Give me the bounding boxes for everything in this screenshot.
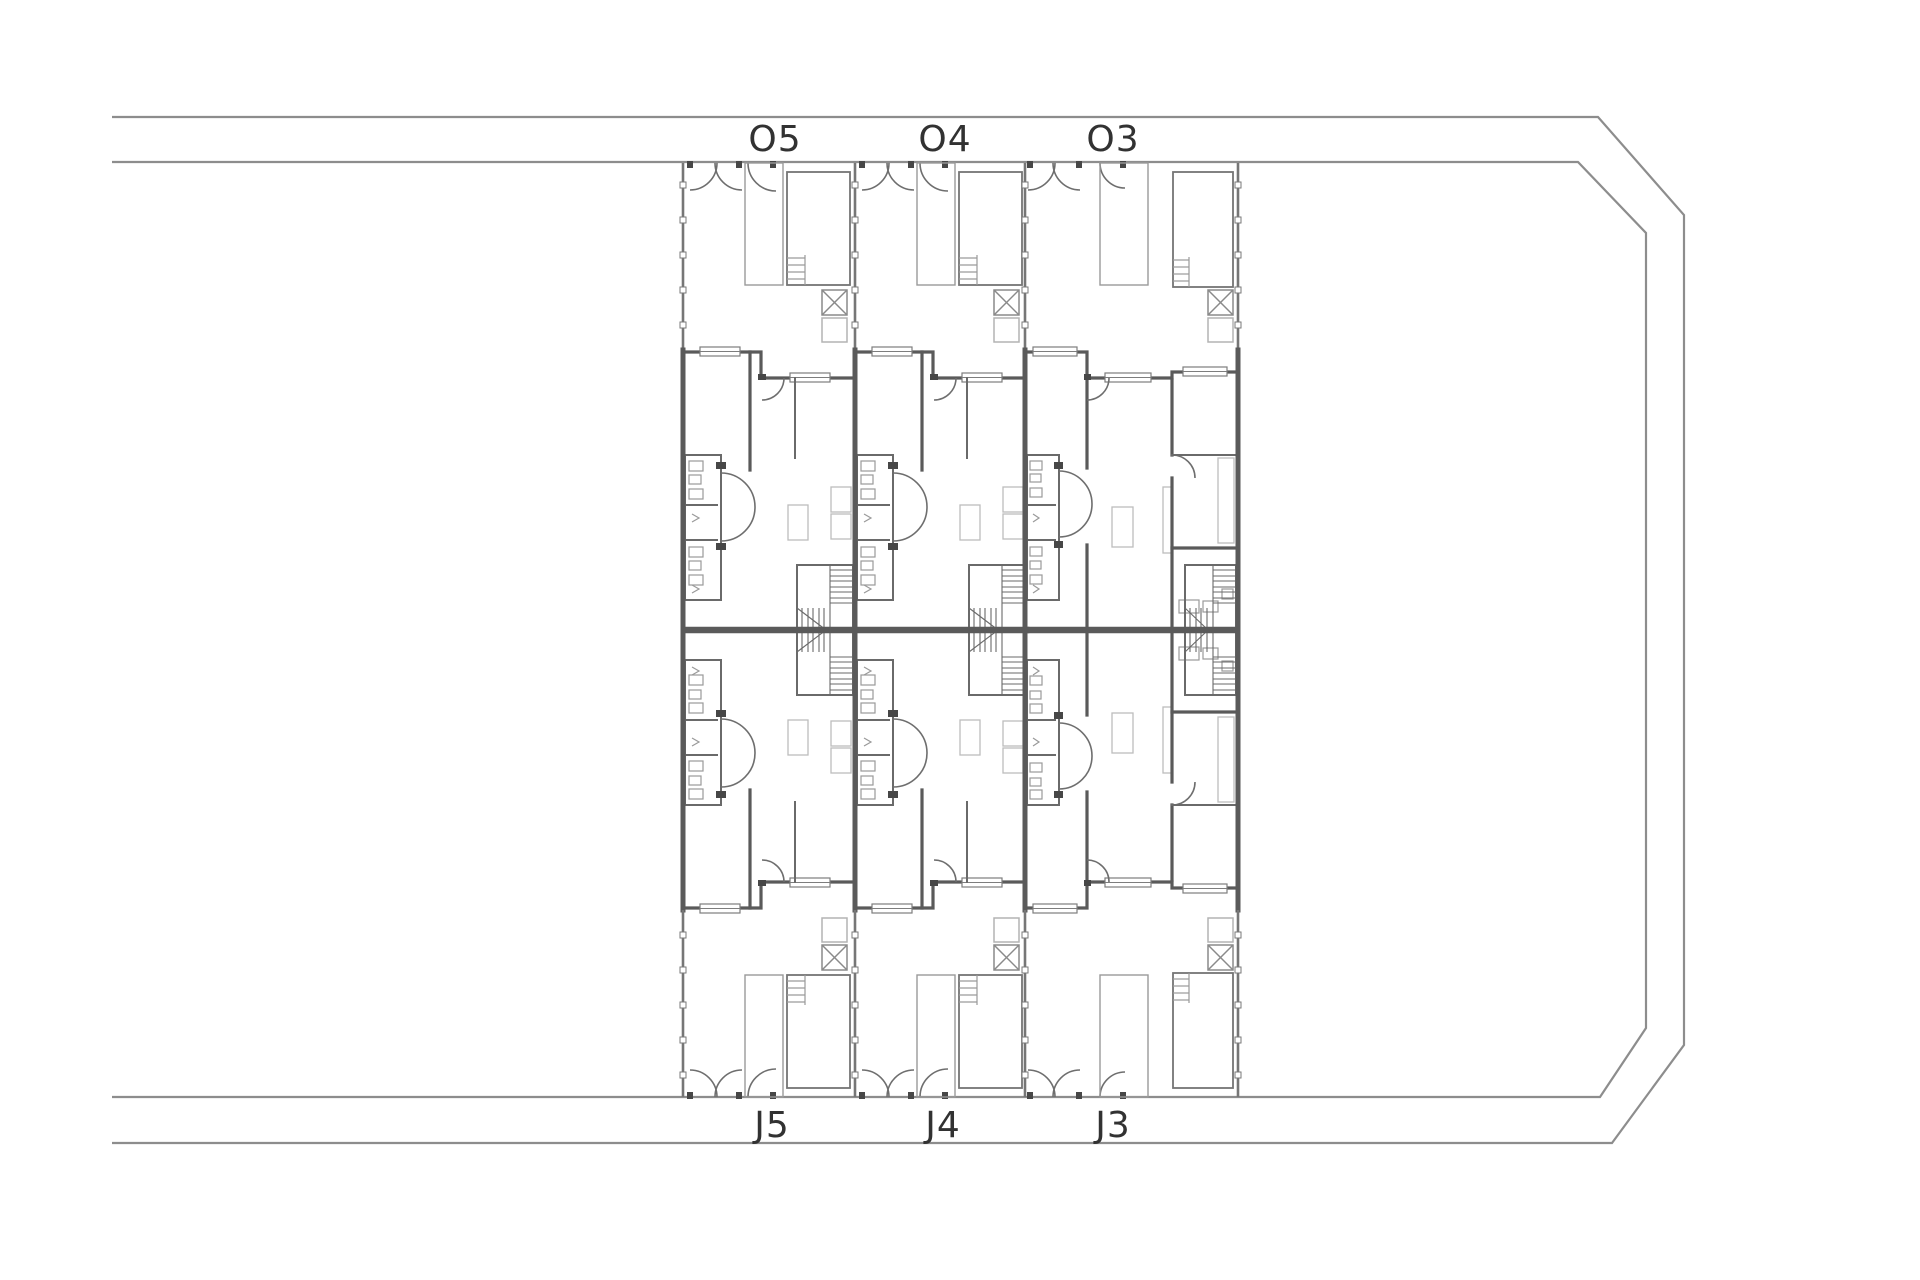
unit-label-o4: O4 (918, 119, 971, 160)
unit-label-o5: O5 (748, 119, 801, 160)
unit-label-j5: J5 (752, 1105, 790, 1146)
unit-label-j3: J3 (1093, 1105, 1131, 1146)
unit-label-j4: J4 (923, 1105, 961, 1146)
site-plan-svg: O5 O4 O3 J5 J4 J3 (0, 0, 1920, 1280)
site-floor-plan: O5 O4 O3 J5 J4 J3 (0, 0, 1920, 1280)
unit-label-o3: O3 (1086, 119, 1139, 160)
